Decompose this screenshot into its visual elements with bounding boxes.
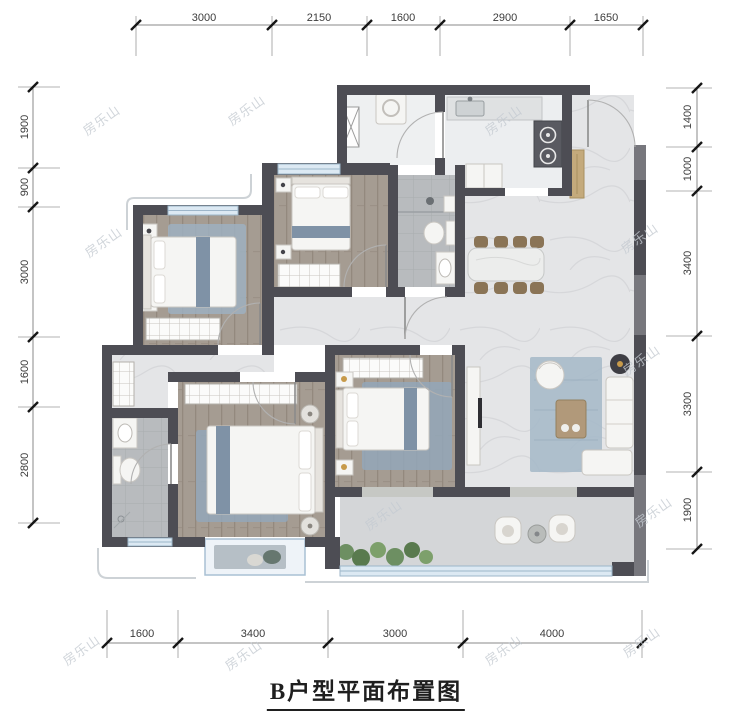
bed-headboard (315, 428, 323, 512)
dim-label: 1000 (682, 157, 694, 181)
shower-head (426, 197, 434, 205)
bed-runner (196, 237, 210, 307)
dim-label: 3000 (383, 628, 407, 640)
dim-label: 2800 (19, 453, 31, 477)
toilet-tank (446, 221, 455, 245)
sliding-door-threshold (510, 487, 577, 497)
dining-chair (513, 236, 527, 248)
pillow (299, 431, 311, 469)
dining-chair (513, 282, 527, 294)
wardrobe (278, 264, 340, 287)
bed-headboard (292, 177, 350, 184)
dim-label: 3400 (241, 628, 265, 640)
washing-machine (376, 93, 406, 124)
dining-area (468, 236, 544, 294)
dim-label: 3300 (682, 392, 694, 416)
dim-label: 1600 (19, 360, 31, 384)
dim-label: 3400 (682, 251, 694, 275)
window (278, 164, 340, 174)
dimension-top: 3000 2150 1600 2900 1650 (131, 12, 648, 56)
floor-plan-page: 3000 2150 1600 2900 1650 1600 3400 3000 … (0, 0, 732, 714)
sofa (606, 377, 633, 448)
dimension-left: 1900 900 3000 1600 2800 (18, 82, 60, 528)
pillow (154, 241, 165, 269)
pillow (247, 554, 263, 566)
bed-runner (292, 226, 350, 238)
pillow (323, 187, 348, 198)
faucet (468, 97, 473, 102)
armchair (536, 361, 564, 389)
plan-title: B户型平面布置图 (267, 672, 465, 711)
pillow (347, 421, 358, 446)
plant (370, 542, 386, 558)
dim-label: 1900 (682, 498, 694, 522)
dim-label: 1400 (682, 105, 694, 129)
hallway-floor-west (112, 355, 274, 372)
dining-chair (494, 282, 508, 294)
kitchen-sink (456, 101, 484, 116)
sofa-chaise (582, 450, 632, 475)
bed-headboard (336, 390, 343, 448)
dim-label: 4000 (540, 628, 564, 640)
hall-closet (113, 362, 134, 406)
hallway-floor (262, 297, 465, 345)
dimension-bottom: 1600 3400 3000 4000 (102, 610, 647, 658)
pillow (299, 473, 311, 511)
coffee-table (556, 400, 586, 438)
bay-window (205, 539, 305, 575)
balcony-floor (340, 497, 634, 566)
plant (404, 542, 420, 558)
shelf (444, 196, 455, 212)
dining-chair (530, 282, 544, 294)
wardrobe (343, 358, 423, 378)
pillow (263, 550, 281, 564)
tv (478, 398, 482, 428)
bench (146, 318, 220, 340)
sliding-door-threshold (362, 487, 433, 497)
toilet (424, 222, 444, 244)
bed-runner (216, 426, 230, 514)
dim-label: 3000 (192, 12, 216, 24)
dim-label: 1900 (19, 115, 31, 139)
dining-chair (474, 236, 488, 248)
bed-runner (404, 388, 417, 450)
floor-plan-drawing: 3000 2150 1600 2900 1650 1600 3400 3000 … (0, 0, 732, 714)
dining-chair (474, 282, 488, 294)
pillow (295, 187, 320, 198)
dimension-right: 1400 1000 3400 3300 1900 (666, 83, 712, 554)
window (128, 538, 172, 546)
entry (570, 150, 584, 198)
window (168, 206, 238, 215)
dining-chair (530, 236, 544, 248)
dining-chair (494, 236, 508, 248)
bed-headboard (143, 235, 151, 309)
pillow (347, 393, 358, 418)
dim-label: 2150 (307, 12, 331, 24)
dining-table (468, 248, 544, 281)
plant (338, 544, 354, 560)
plant (386, 548, 404, 566)
dim-label: 2900 (493, 12, 517, 24)
pillow (154, 275, 165, 303)
dim-label: 1600 (130, 628, 154, 640)
balcony-railing (340, 566, 612, 576)
plant (419, 550, 433, 564)
plant (352, 549, 370, 567)
dim-label: 900 (19, 178, 31, 196)
dim-label: 1650 (594, 12, 618, 24)
dim-label: 3000 (19, 260, 31, 284)
wardrobe (185, 384, 297, 404)
dim-label: 1600 (391, 12, 415, 24)
toilet (120, 458, 140, 482)
